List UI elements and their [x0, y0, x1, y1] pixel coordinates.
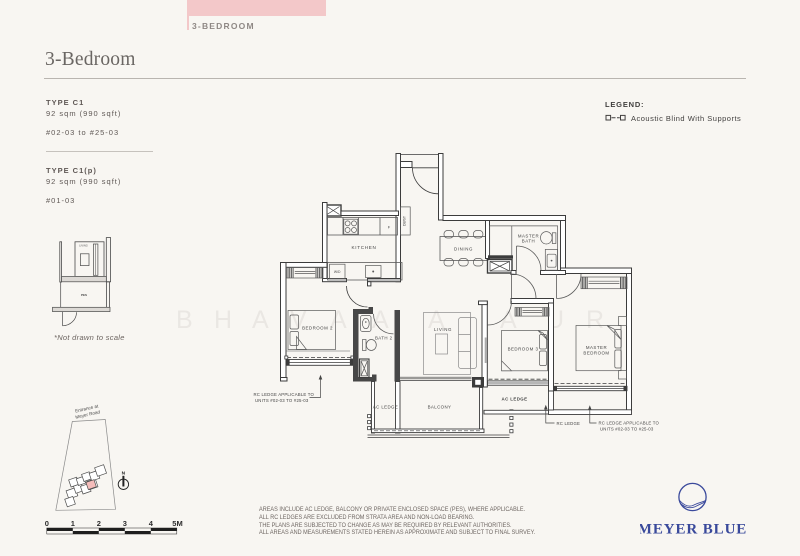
svg-text:1: 1	[71, 519, 75, 528]
svg-text:0: 0	[45, 519, 49, 528]
svg-text:5M: 5M	[172, 519, 182, 528]
svg-text:2: 2	[97, 519, 101, 528]
svg-text:N: N	[122, 471, 126, 477]
svg-text:3: 3	[123, 519, 127, 528]
svg-text:4: 4	[149, 519, 154, 528]
